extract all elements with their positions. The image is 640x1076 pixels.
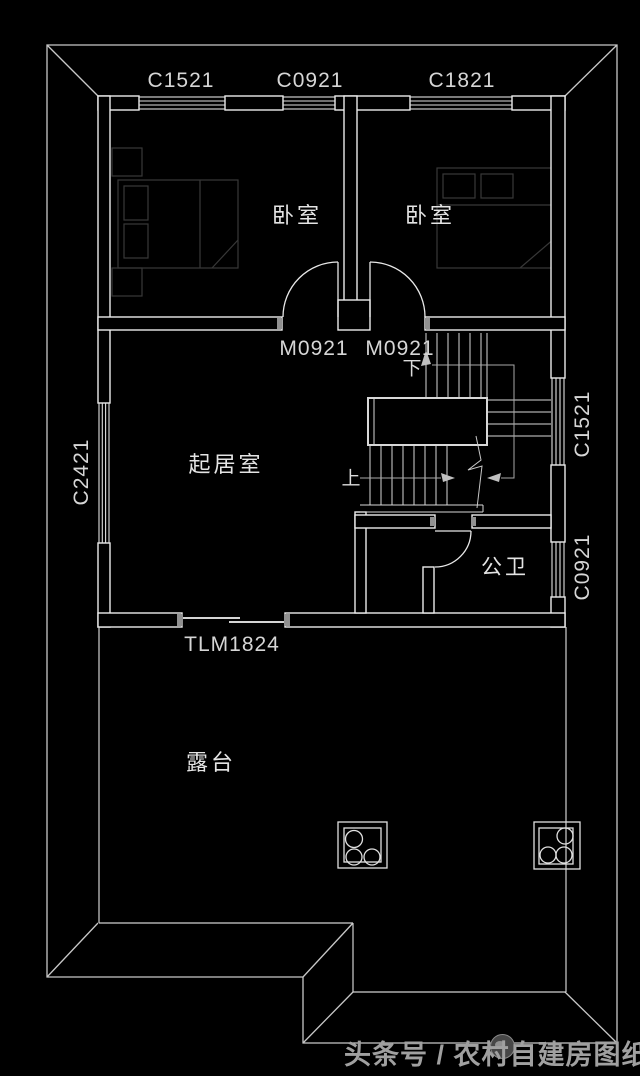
terrace-outline [99, 627, 566, 992]
terrace-drain-right [534, 822, 580, 869]
roof-outline [47, 45, 617, 1043]
room-label-terrace: 露台 [186, 745, 236, 777]
door-label-right-bedroom: M0921 [365, 337, 434, 361]
floor-plan-drawing [0, 0, 640, 1076]
room-label-bedroom-left: 卧室 [272, 198, 322, 230]
window-label-top-1: C1521 [148, 69, 215, 93]
window-label-left: C2421 [70, 439, 94, 506]
bedroom-furniture [112, 148, 555, 296]
stair-up-label: 上 [341, 464, 360, 491]
room-label-bedroom-right: 卧室 [405, 198, 455, 230]
door-label-left-bedroom: M0921 [279, 337, 348, 361]
door-label-terrace-slider: TLM1824 [184, 633, 280, 657]
sliding-door [183, 618, 284, 622]
window-label-top-2: C0921 [277, 69, 344, 93]
room-label-bathroom: 公卫 [481, 551, 529, 581]
walls [98, 96, 565, 627]
floor-plan-canvas: C1521 C0921 C1821 C2421 C1521 C0921 M092… [0, 0, 640, 1076]
window-label-top-3: C1821 [429, 69, 496, 93]
room-label-living-room: 起居室 [188, 447, 263, 479]
terrace-drain-left [338, 822, 387, 868]
watermark-text: 头条号 / 农村自建房图纸 [344, 1033, 640, 1072]
window-label-right-2: C0921 [571, 534, 595, 601]
window-label-right-1: C1521 [571, 391, 595, 458]
stair-down-label: 下 [402, 354, 421, 381]
